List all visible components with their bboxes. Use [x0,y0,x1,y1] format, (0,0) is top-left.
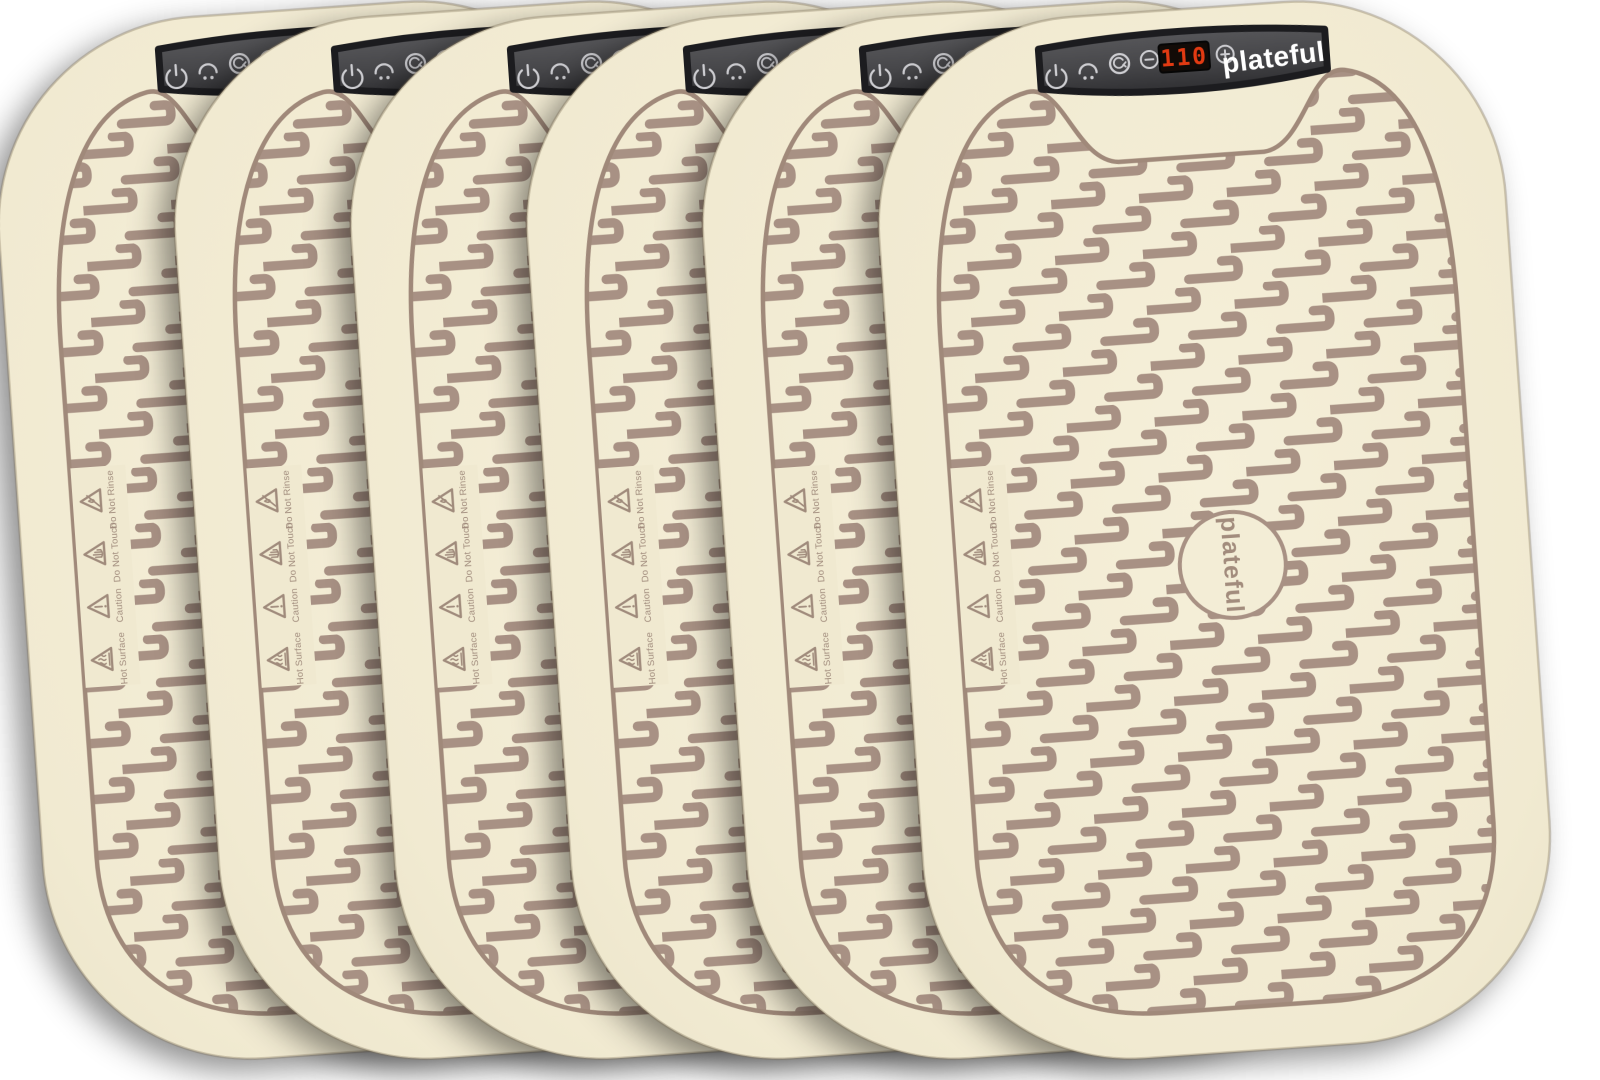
product-photo: Do Not Rinse Do Not Touch Caution [0,0,1600,1080]
temperature-value: 110 [1160,43,1209,72]
warming-mat-6: Do Not Rinse Do Not Touch Caution [863,0,1567,1075]
temperature-display: 110 [1158,41,1210,72]
